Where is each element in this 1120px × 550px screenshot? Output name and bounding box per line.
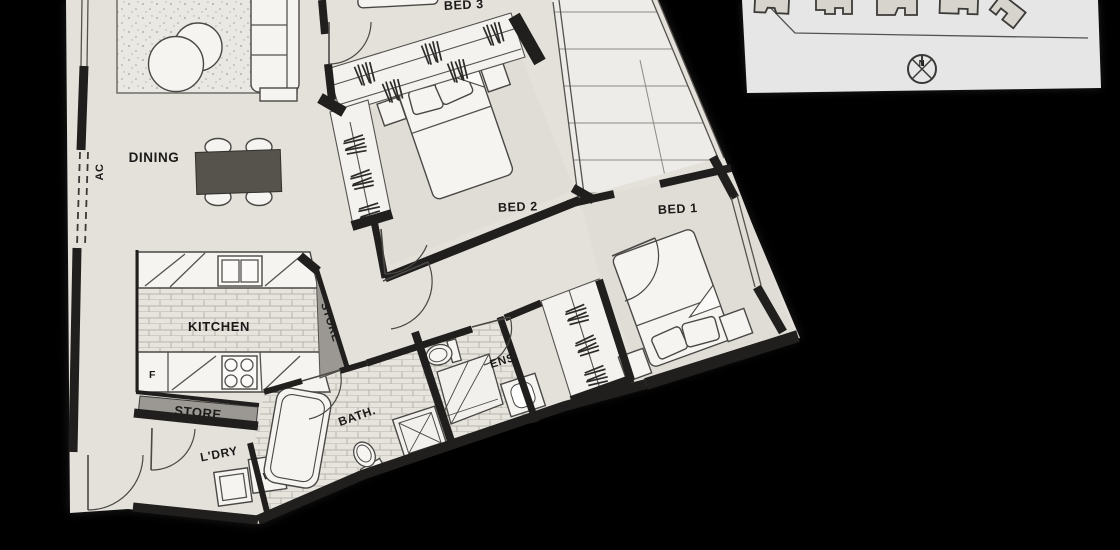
site-inset: N [742,0,1101,93]
kitchen-label: KITCHEN [188,319,250,334]
coffee-table [149,37,204,92]
sofa [251,0,299,101]
inset-paper [742,0,1101,93]
kitchen-sink [218,256,262,286]
cooktop [222,356,257,389]
compass-north-label: N [919,59,925,68]
fridge-label: F [149,369,156,381]
dining-label: DINING [129,150,180,165]
bed2-label: BED 2 [498,199,538,214]
bed1-label: BED 1 [658,201,699,217]
bed3-label: BED 3 [444,0,485,13]
floor-plan-scan: F STORE STORE W [0,0,1120,550]
dining-table [195,150,281,195]
laundry-tub [214,468,252,506]
living-area [117,0,299,101]
ac-label: AC [94,163,106,180]
